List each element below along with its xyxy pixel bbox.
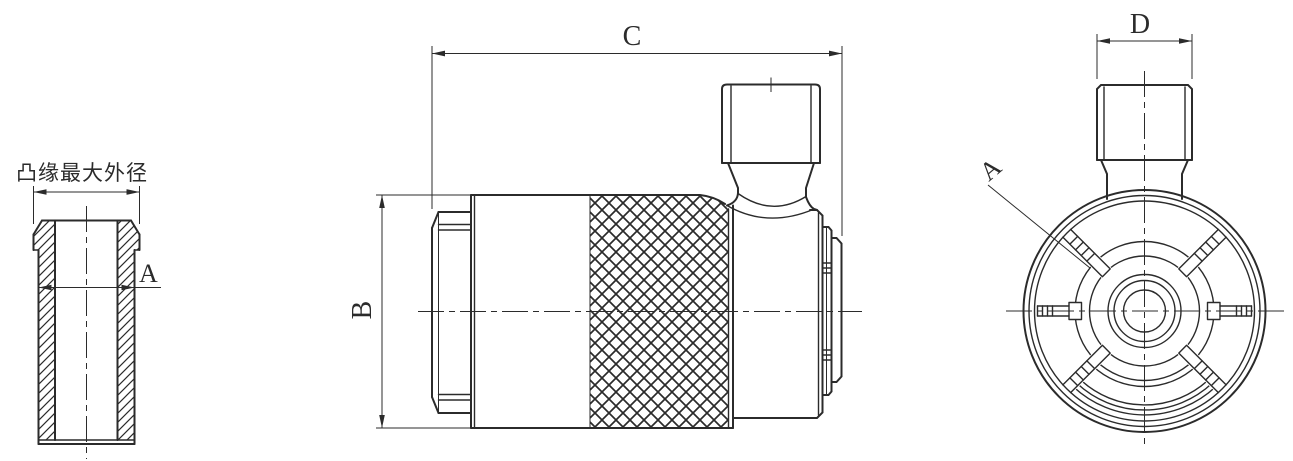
dim-c-label: C xyxy=(623,21,642,52)
front-view: C B xyxy=(347,21,862,428)
dim-a-label: A xyxy=(139,259,158,288)
drawing-canvas: 凸缘最大外径 A xyxy=(0,0,1293,461)
dimension-d: D xyxy=(1097,9,1192,79)
dim-b-label: B xyxy=(347,301,378,320)
leader-a: A xyxy=(974,152,1090,268)
end-view: D A xyxy=(974,9,1284,447)
leader-a-label: A xyxy=(974,152,1007,186)
flange-od-dimension: 凸缘最大外径 xyxy=(16,161,148,224)
flange-note-label: 凸缘最大外径 xyxy=(16,161,148,185)
dimension-a-left: A xyxy=(39,259,162,290)
dim-d-label: D xyxy=(1130,9,1150,40)
left-section-view: 凸缘最大外径 A xyxy=(16,161,161,459)
technical-drawing: 凸缘最大外径 A xyxy=(0,0,1293,461)
